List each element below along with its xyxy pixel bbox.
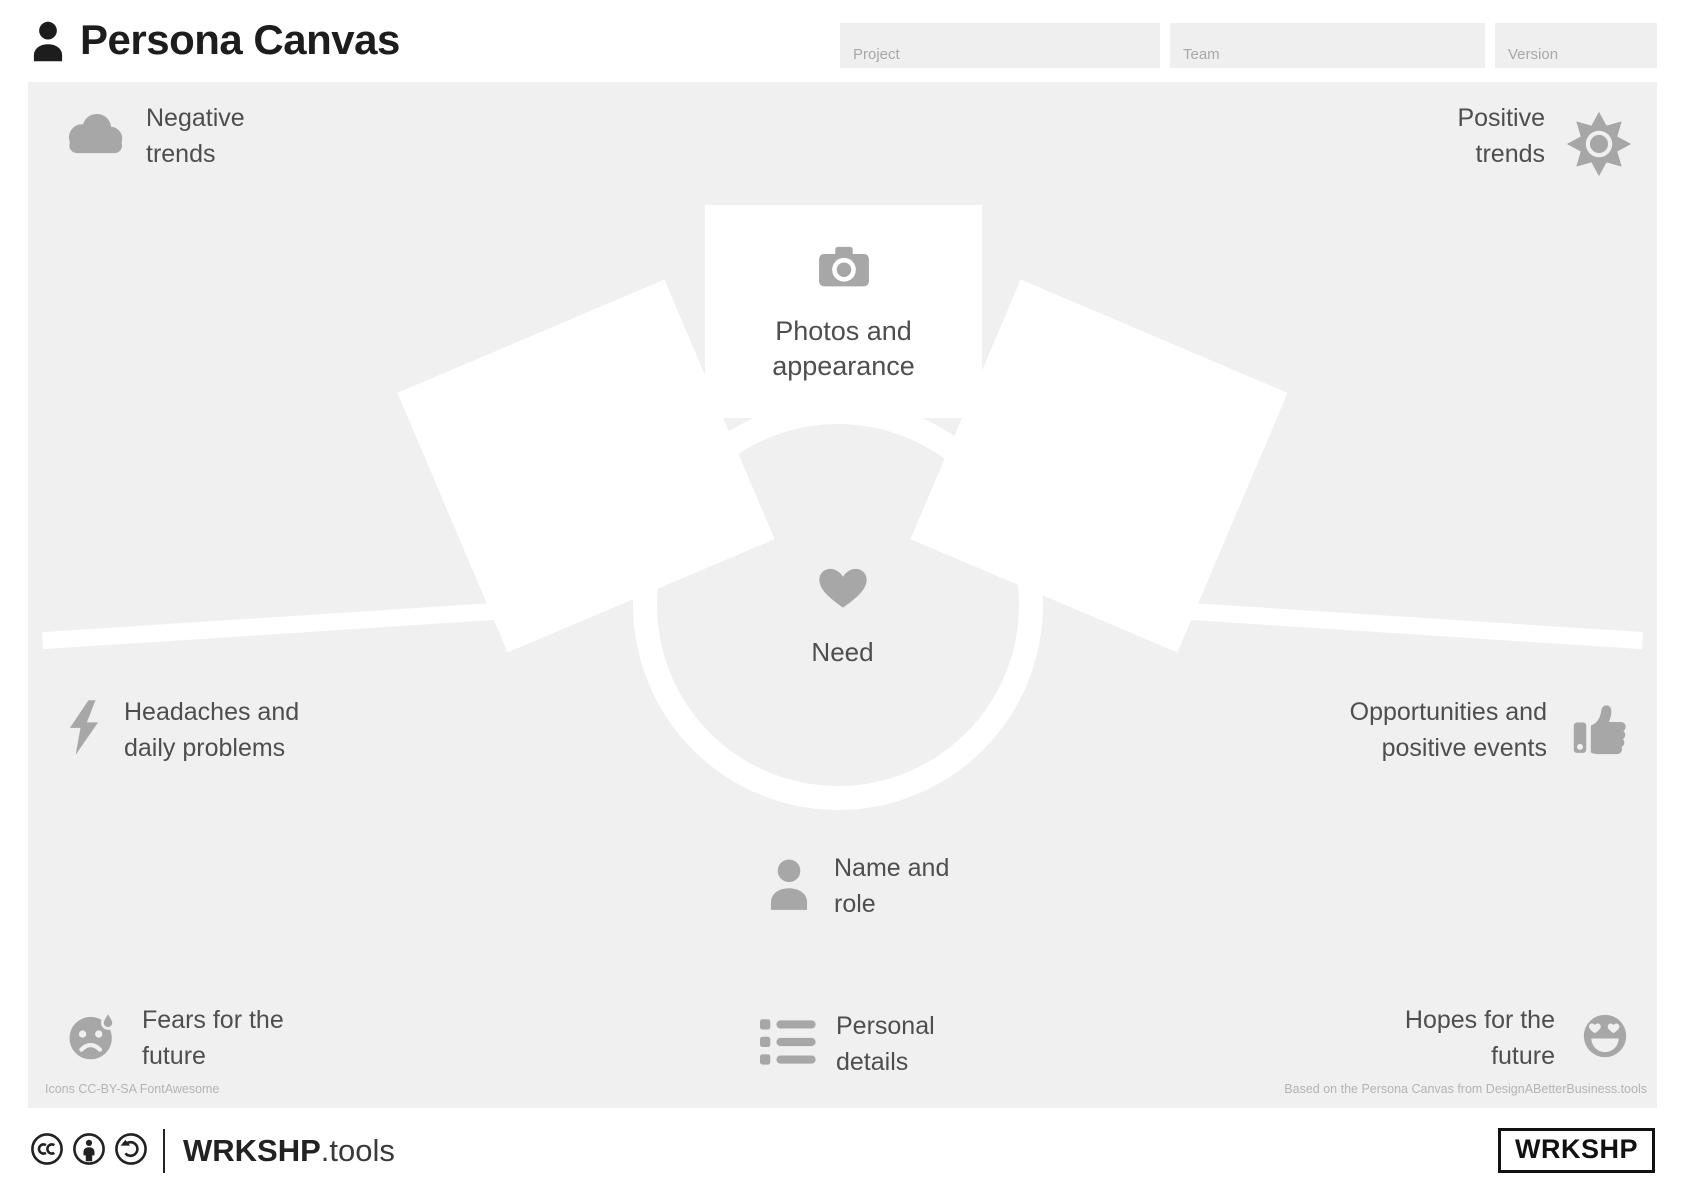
- person-icon: [30, 20, 66, 67]
- sun-icon: [1565, 110, 1633, 183]
- wrkshp-tools-wordmark: WRKSHP.tools: [183, 1133, 395, 1169]
- wrkshp-logo: WRKSHP: [1498, 1128, 1655, 1173]
- project-field[interactable]: [840, 23, 1160, 68]
- cc-attribution-icon: [72, 1132, 106, 1171]
- cc-sharealike-icon: [114, 1132, 148, 1171]
- heart-eyes-icon: [1579, 1010, 1631, 1067]
- page-title: Persona Canvas: [80, 16, 400, 64]
- camera-icon: [817, 243, 871, 294]
- hopes-zone: Hopes for the future: [1395, 1002, 1631, 1074]
- heart-icon: [816, 560, 870, 613]
- fears-zone: Fears for the future: [66, 1002, 302, 1074]
- positive-trends-label: Positive trends: [1425, 100, 1545, 172]
- list-icon: [760, 1018, 816, 1071]
- positive-trends-zone: Positive trends: [1425, 100, 1633, 183]
- persona-canvas-area: Photos and appearance Need: [28, 82, 1657, 1108]
- opportunities-label: Opportunities and positive events: [1332, 694, 1547, 766]
- need-label: Need: [811, 637, 873, 668]
- photos-appearance-label: Photos and appearance: [744, 314, 944, 384]
- name-role-label: Name and role: [834, 850, 964, 922]
- photos-appearance-box: Photos and appearance: [705, 205, 982, 418]
- icons-credit: Icons CC-BY-SA FontAwesome: [45, 1082, 219, 1096]
- fears-label: Fears for the future: [142, 1002, 302, 1074]
- user-icon: [766, 858, 812, 915]
- personal-details-label: Personal details: [836, 1008, 956, 1080]
- bolt-icon: [68, 699, 100, 761]
- version-field[interactable]: [1495, 23, 1657, 68]
- cloud-icon: [60, 109, 126, 159]
- opportunities-zone: Opportunities and positive events: [1332, 694, 1631, 766]
- footer: WRKSHP.tools: [30, 1127, 395, 1175]
- personal-details-zone: Personal details: [760, 1008, 956, 1080]
- footer-divider: [163, 1129, 165, 1173]
- negative-trends-zone: Negative trends: [60, 100, 266, 172]
- sad-face-icon: [66, 1010, 118, 1067]
- team-field[interactable]: [1170, 23, 1485, 68]
- name-role-zone: Name and role: [766, 850, 964, 922]
- cc-icon: [30, 1132, 64, 1171]
- hopes-label: Hopes for the future: [1395, 1002, 1555, 1074]
- negative-trends-label: Negative trends: [146, 100, 266, 172]
- base-credit: Based on the Persona Canvas from DesignA…: [1284, 1082, 1647, 1096]
- headaches-label: Headaches and daily problems: [124, 694, 309, 766]
- need-zone: Need: [28, 560, 1657, 668]
- headaches-zone: Headaches and daily problems: [68, 694, 309, 766]
- thumbs-up-icon: [1571, 700, 1631, 761]
